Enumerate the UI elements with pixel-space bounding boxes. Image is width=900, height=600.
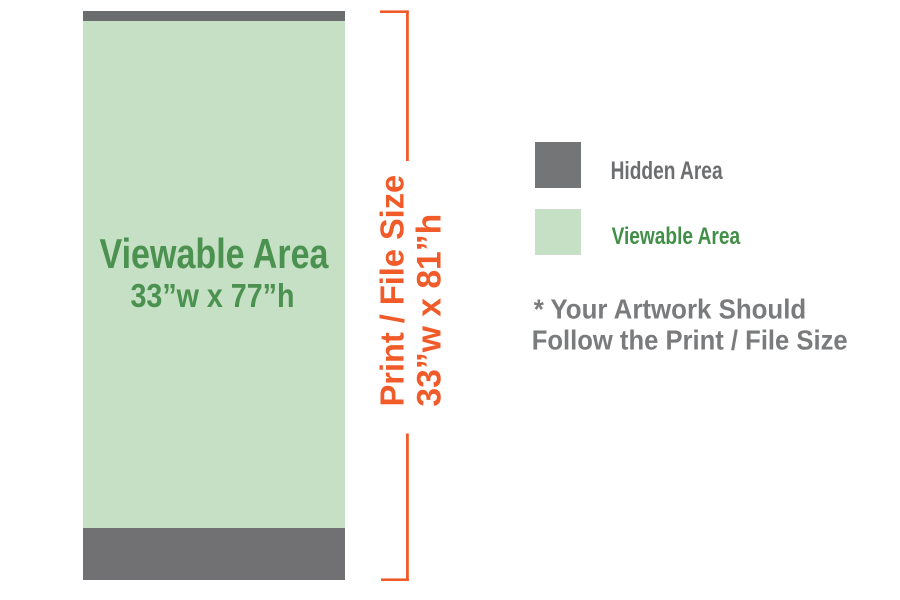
svg-text:* Your Artwork Should: * Your Artwork Should [534,292,807,324]
svg-text:33”w x 77”h: 33”w x 77”h [131,278,295,315]
svg-text:Hidden Area: Hidden Area [611,158,723,185]
svg-text:Print / File Size: Print / File Size [374,175,411,407]
svg-text:Viewable Area: Viewable Area [100,230,330,277]
svg-text:Follow the Print / File Size: Follow the Print / File Size [532,323,848,355]
svg-text:Viewable Area: Viewable Area [612,224,741,250]
svg-text:33”w x 81”h: 33”w x 81”h [410,214,448,407]
